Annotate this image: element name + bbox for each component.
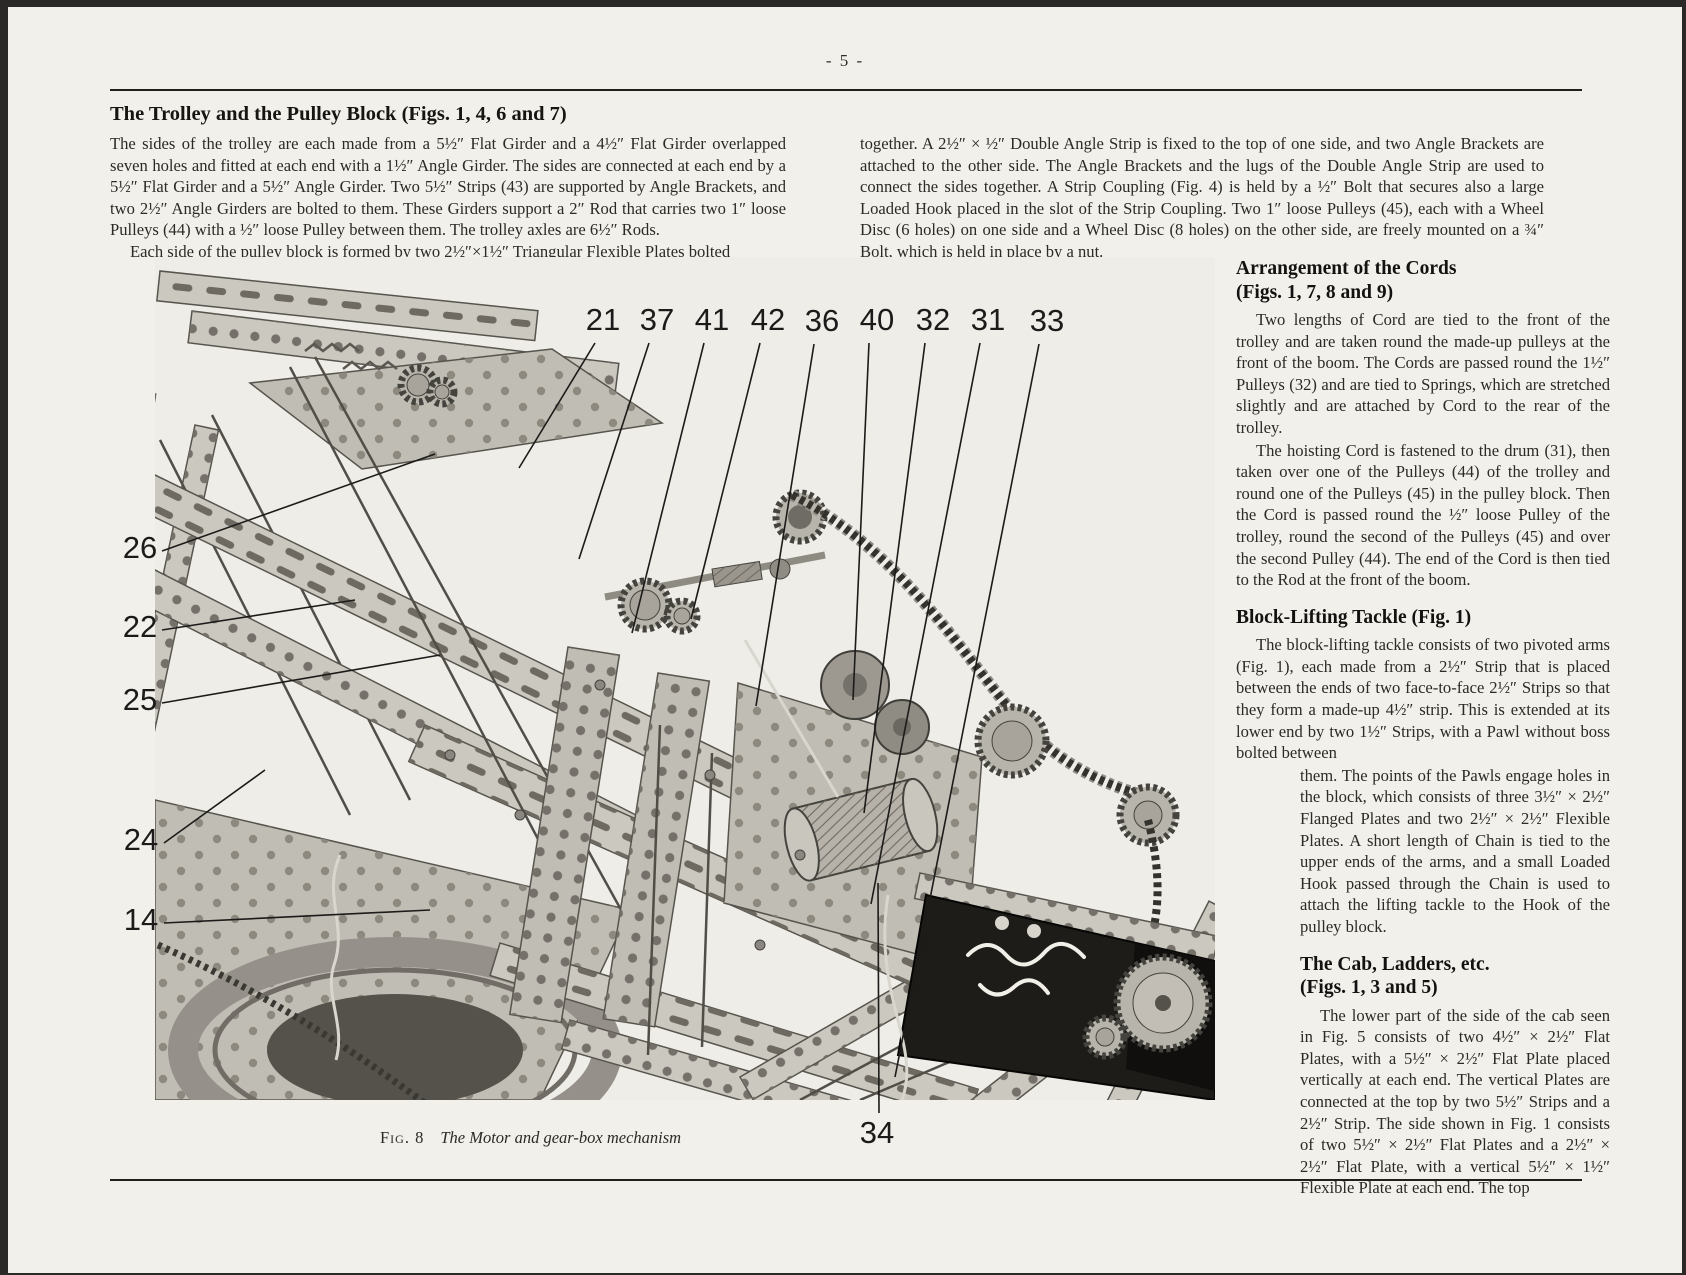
callout-number-32: 32 [916, 302, 950, 337]
callout-number-42: 42 [751, 302, 785, 337]
section-cab-ladders: The Cab, Ladders, etc. (Figs. 1, 3 and 5… [1300, 953, 1610, 1199]
intro-column-right: together. A 2½″ × ½″ Double Angle Strip … [860, 133, 1544, 263]
cords-paragraph-2: The hoisting Cord is fastened to the dru… [1236, 440, 1610, 591]
page: - 5 - The Trolley and the Pulley Block (… [8, 7, 1682, 1273]
figure-caption: Fig. 8The Motor and gear-box mechanism [380, 1128, 681, 1148]
callout-number-31: 31 [971, 302, 1005, 337]
section-block-lifting-tackle: Block-Lifting Tackle (Fig. 1) The block-… [1236, 606, 1610, 938]
callout-number-21: 21 [586, 302, 620, 337]
callout-number-24: 24 [124, 822, 158, 857]
callout-number-36: 36 [805, 303, 839, 338]
sidebar-column: Arrangement of the Cords (Figs. 1, 7, 8 … [1236, 257, 1610, 1200]
top-rule [110, 89, 1582, 91]
intro-column-left: The sides of the trolley are each made f… [110, 133, 786, 263]
section-heading-cords: Arrangement of the Cords (Figs. 1, 7, 8 … [1236, 257, 1610, 304]
figure-caption-text: The Motor and gear-box mechanism [440, 1128, 681, 1147]
section-heading-tackle: Block-Lifting Tackle (Fig. 1) [1236, 606, 1610, 630]
callout-number-25: 25 [123, 682, 157, 717]
section-arrangement-of-cords: Arrangement of the Cords (Figs. 1, 7, 8 … [1236, 257, 1610, 591]
callout-number-14: 14 [124, 902, 158, 937]
callout-leader-34 [878, 883, 879, 1113]
motor-terminal [995, 916, 1009, 930]
intro-paragraph-1: The sides of the trolley are each made f… [110, 133, 786, 241]
figure-8: 213741423640323133262225241434 [100, 255, 1220, 1145]
section-heading-cab: The Cab, Ladders, etc. (Figs. 1, 3 and 5… [1300, 953, 1610, 1000]
cords-paragraph-1: Two lengths of Cord are tied to the fron… [1236, 309, 1610, 439]
figure-caption-label: Fig. 8 [380, 1128, 424, 1147]
callout-number-33: 33 [1030, 303, 1064, 338]
scanned-manual-page: { "page": { "number": "- 5 -" }, "intro"… [0, 0, 1686, 1275]
page-number: - 5 - [8, 51, 1682, 71]
tackle-paragraph-a: The block-lifting tackle consists of two… [1236, 634, 1610, 764]
callout-number-37: 37 [640, 302, 674, 337]
figure-illustration [100, 257, 1220, 1145]
callout-number-22: 22 [123, 609, 157, 644]
tackle-wrapped-text: them. The points of the Pawls engage hol… [1300, 765, 1610, 938]
cab-paragraph: The lower part of the side of the cab se… [1300, 1005, 1610, 1199]
callout-number-40: 40 [860, 302, 894, 337]
callout-number-34: 34 [860, 1115, 894, 1145]
section-heading: The Trolley and the Pulley Block (Figs. … [110, 103, 567, 126]
bottom-rule [110, 1179, 1582, 1181]
callout-number-26: 26 [123, 530, 157, 565]
callout-number-41: 41 [695, 302, 729, 337]
intro-paragraph-3: together. A 2½″ × ½″ Double Angle Strip … [860, 133, 1544, 263]
motor-terminal [1027, 924, 1041, 938]
tackle-paragraph-b: them. The points of the Pawls engage hol… [1300, 765, 1610, 938]
